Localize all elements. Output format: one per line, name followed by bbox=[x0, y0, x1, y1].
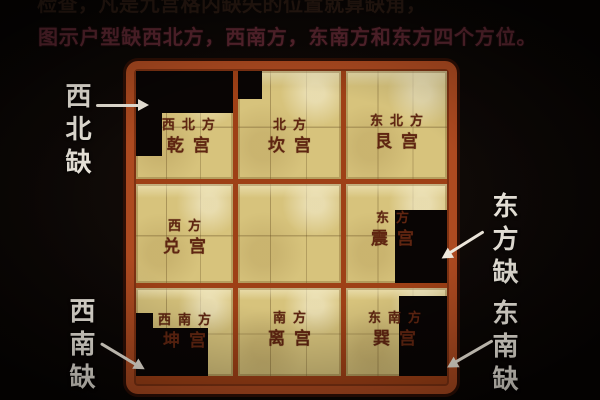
palace-cell-southeast: 东南方 巽宫 bbox=[346, 288, 447, 376]
palace-name: 艮宫 bbox=[346, 131, 447, 152]
arrow-head bbox=[138, 99, 149, 111]
palace-cell-southwest: 西南方 坤宫 bbox=[136, 288, 233, 376]
callout-southeast-missing: 东南缺 bbox=[486, 299, 523, 398]
header-line-1: 检查，凡是九宫格内缺失的位置就算缺角， bbox=[37, 0, 427, 17]
palace-direction: 东北方 bbox=[346, 113, 447, 129]
palace-direction: 北方 bbox=[238, 117, 341, 133]
callout-east-missing: 东方缺 bbox=[486, 192, 523, 291]
palace-name: 兑宫 bbox=[136, 236, 233, 257]
palace-cell-north: 北方 坎宫 bbox=[238, 71, 341, 179]
palace-label: 东南方 巽宫 bbox=[346, 310, 445, 350]
palace-label: 东方 震宫 bbox=[346, 210, 443, 250]
missing-area bbox=[238, 71, 262, 99]
palace-label: 北方 坎宫 bbox=[238, 117, 341, 157]
palace-cell-west: 西方 兑宫 bbox=[136, 184, 233, 283]
palace-label: 西南方 坤宫 bbox=[136, 312, 233, 352]
palace-label: 西方 兑宫 bbox=[136, 218, 233, 258]
palace-direction: 东方 bbox=[346, 210, 443, 226]
palace-direction: 西南方 bbox=[136, 312, 233, 328]
palace-label: 东北方 艮宫 bbox=[346, 113, 447, 153]
palace-name: 坤宫 bbox=[136, 330, 233, 351]
palace-name: 坎宫 bbox=[238, 135, 341, 156]
palace-cell-south: 南方 离宫 bbox=[238, 288, 341, 376]
callout-northwest-missing: 西北缺 bbox=[59, 82, 96, 181]
palace-direction: 南方 bbox=[238, 310, 341, 326]
palace-name: 离宫 bbox=[238, 328, 341, 349]
palace-cell-northeast: 东北方 艮宫 bbox=[346, 71, 447, 179]
palace-name: 震宫 bbox=[346, 228, 443, 249]
nine-palace-grid: 西北方 乾宫 北方 坎宫 东北方 艮宫 西方 bbox=[136, 71, 447, 384]
palace-name: 巽宫 bbox=[346, 328, 445, 349]
palace-label: 西北方 乾宫 bbox=[144, 117, 233, 157]
palace-name: 乾宫 bbox=[144, 135, 233, 156]
palace-cell-center bbox=[238, 184, 341, 283]
arrow-shaft bbox=[96, 104, 139, 107]
palace-direction: 西方 bbox=[136, 218, 233, 234]
palace-direction: 西北方 bbox=[144, 117, 233, 133]
palace-cell-northwest: 西北方 乾宫 bbox=[136, 71, 233, 179]
palace-label: 南方 离宫 bbox=[238, 310, 341, 350]
callout-southwest-missing: 西南缺 bbox=[63, 297, 100, 396]
fengshui-missing-corner-diagram: 检查，凡是九宫格内缺失的位置就算缺角， 图示户型缺西北方，西南方，东南方和东方四… bbox=[0, 0, 600, 400]
header-line-2: 图示户型缺西北方，西南方，东南方和东方四个方位。 bbox=[38, 21, 537, 50]
palace-cell-east: 东方 震宫 bbox=[346, 184, 447, 283]
palace-direction: 东南方 bbox=[346, 310, 445, 326]
floorplan-frame: 西北方 乾宫 北方 坎宫 东北方 艮宫 西方 bbox=[126, 61, 457, 394]
